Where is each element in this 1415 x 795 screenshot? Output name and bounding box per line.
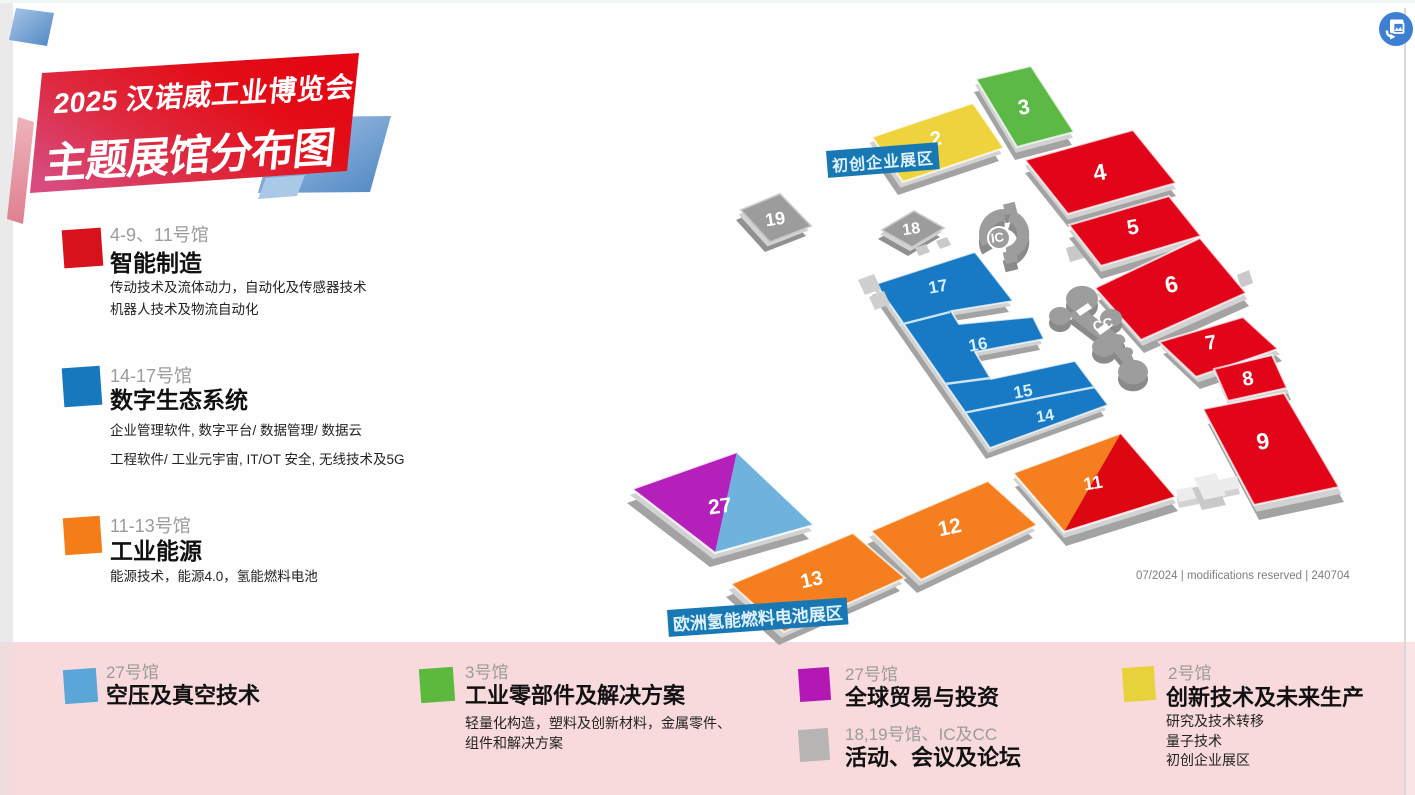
svg-text:11: 11 xyxy=(1082,472,1104,495)
svg-text:17: 17 xyxy=(927,276,949,298)
svg-text:18: 18 xyxy=(901,220,921,239)
svg-text:16: 16 xyxy=(967,334,989,356)
svg-text:12: 12 xyxy=(936,514,964,541)
svg-text:15: 15 xyxy=(1012,381,1034,403)
svg-text:27: 27 xyxy=(707,494,733,520)
svg-text:19: 19 xyxy=(764,208,787,231)
svg-text:14: 14 xyxy=(1035,407,1056,427)
svg-text:13: 13 xyxy=(799,567,825,593)
